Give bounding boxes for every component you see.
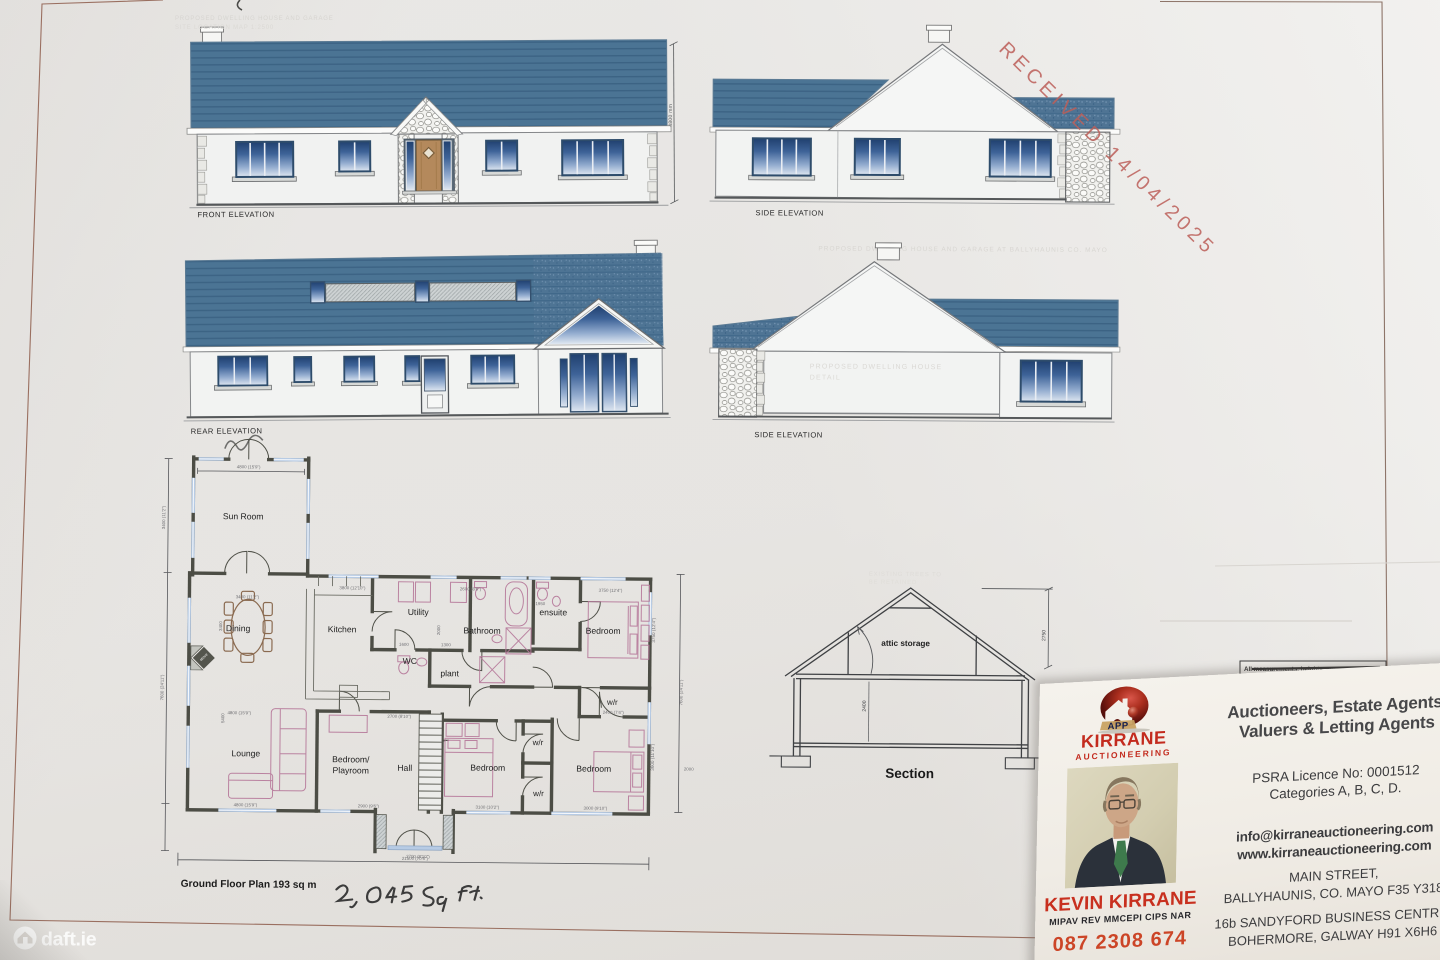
svg-text:5400: 5400 [220,713,225,723]
svg-text:w/r: w/r [532,789,544,798]
svg-text:plant: plant [440,668,459,678]
svg-text:3750 (12'4"): 3750 (12'4") [651,617,656,642]
svg-text:w/r: w/r [606,698,618,707]
svg-text:2000: 2000 [436,625,441,635]
svg-text:Ground Floor Plan 193 sq m: Ground Floor Plan 193 sq m [181,879,317,891]
svg-text:Dining: Dining [226,623,251,633]
svg-text:7600 (24'11"): 7600 (24'11") [678,679,683,705]
svg-text:w/r: w/r [532,738,544,747]
svg-text:attic storage: attic storage [881,639,930,648]
svg-text:WC: WC [403,656,417,666]
svg-text:2600 (8'6"): 2600 (8'6") [460,586,482,591]
svg-text:SIDE ELEVATION: SIDE ELEVATION [754,430,822,439]
svg-text:1300: 1300 [441,642,451,647]
svg-text:ensuite: ensuite [539,607,567,617]
svg-text:1600: 1600 [399,642,409,647]
svg-text:Bedroom: Bedroom [470,762,505,772]
svg-text:DETAIL: DETAIL [810,374,841,381]
svg-text:EXISTING TREES TO: EXISTING TREES TO [869,572,942,579]
svg-text:4800 (15'9"): 4800 (15'9") [237,464,261,469]
svg-text:7600 (24'11"): 7600 (24'11") [159,674,164,700]
svg-text:2400 (7'4"): 2400 (7'4") [603,710,625,715]
svg-text:FRONT ELEVATION: FRONT ELEVATION [197,210,274,219]
svg-text:4800 mm: 4800 mm [668,104,674,127]
svg-text:daft.ie: daft.ie [41,929,97,951]
svg-text:1950: 1950 [535,601,545,606]
svg-text:PROPOSED DWELLING HOUSE AND GA: PROPOSED DWELLING HOUSE AND GARAGE [175,16,334,22]
svg-text:PROPOSED DWELLING HOUSE AND GA: PROPOSED DWELLING HOUSE AND GARAGE AT BA… [818,245,1107,254]
svg-text:Bedroom: Bedroom [576,764,611,774]
svg-text:REAR ELEVATION: REAR ELEVATION [191,426,263,436]
svg-text:Kitchen: Kitchen [328,624,357,634]
svg-text:Bedroom: Bedroom [586,626,621,636]
svg-text:4800 (15'9"): 4800 (15'9") [234,802,258,807]
svg-text:Hall: Hall [397,763,412,773]
svg-text:Utility: Utility [408,607,430,617]
svg-text:3100 (10'2"): 3100 (10'2") [476,805,500,810]
svg-text:3400: 3400 [218,621,223,631]
svg-text:PROPOSED DWELLING HOUSE: PROPOSED DWELLING HOUSE [810,363,943,371]
svg-text:2900 (9'6"): 2900 (9'6") [358,803,380,808]
svg-text:Sun Room: Sun Room [223,511,264,521]
svg-text:3400 (11'2"): 3400 (11'2") [236,594,260,599]
svg-text:BE RETAINED: BE RETAINED [869,580,917,586]
svg-text:Bathroom: Bathroom [463,625,500,635]
svg-text:Playroom: Playroom [333,765,369,775]
svg-text:3000 (9'10"): 3000 (9'10") [584,806,608,811]
svg-text:SITE LOCATION MAP 1:2500: SITE LOCATION MAP 1:2500 [175,25,274,31]
svg-text:3750 (12'4"): 3750 (12'4") [599,588,623,593]
svg-text:2700 (8'10"): 2700 (8'10") [406,854,430,859]
svg-text:Lounge: Lounge [232,748,261,758]
svg-text:2400: 2400 [862,700,868,711]
svg-text:2700 (8'10"): 2700 (8'10") [387,714,411,719]
svg-text:3800 (12'10"): 3800 (12'10") [339,585,366,590]
svg-text:4800 (15'9"): 4800 (15'9") [227,710,251,715]
svg-text:SIDE ELEVATION: SIDE ELEVATION [755,208,823,217]
svg-text:3400 (11'2"): 3400 (11'2") [161,505,166,529]
svg-text:Section: Section [885,766,934,781]
svg-text:Bedroom/: Bedroom/ [332,754,370,764]
svg-text:2750: 2750 [1041,630,1047,641]
svg-text:3600 (11'10"): 3600 (11'10") [650,743,655,770]
